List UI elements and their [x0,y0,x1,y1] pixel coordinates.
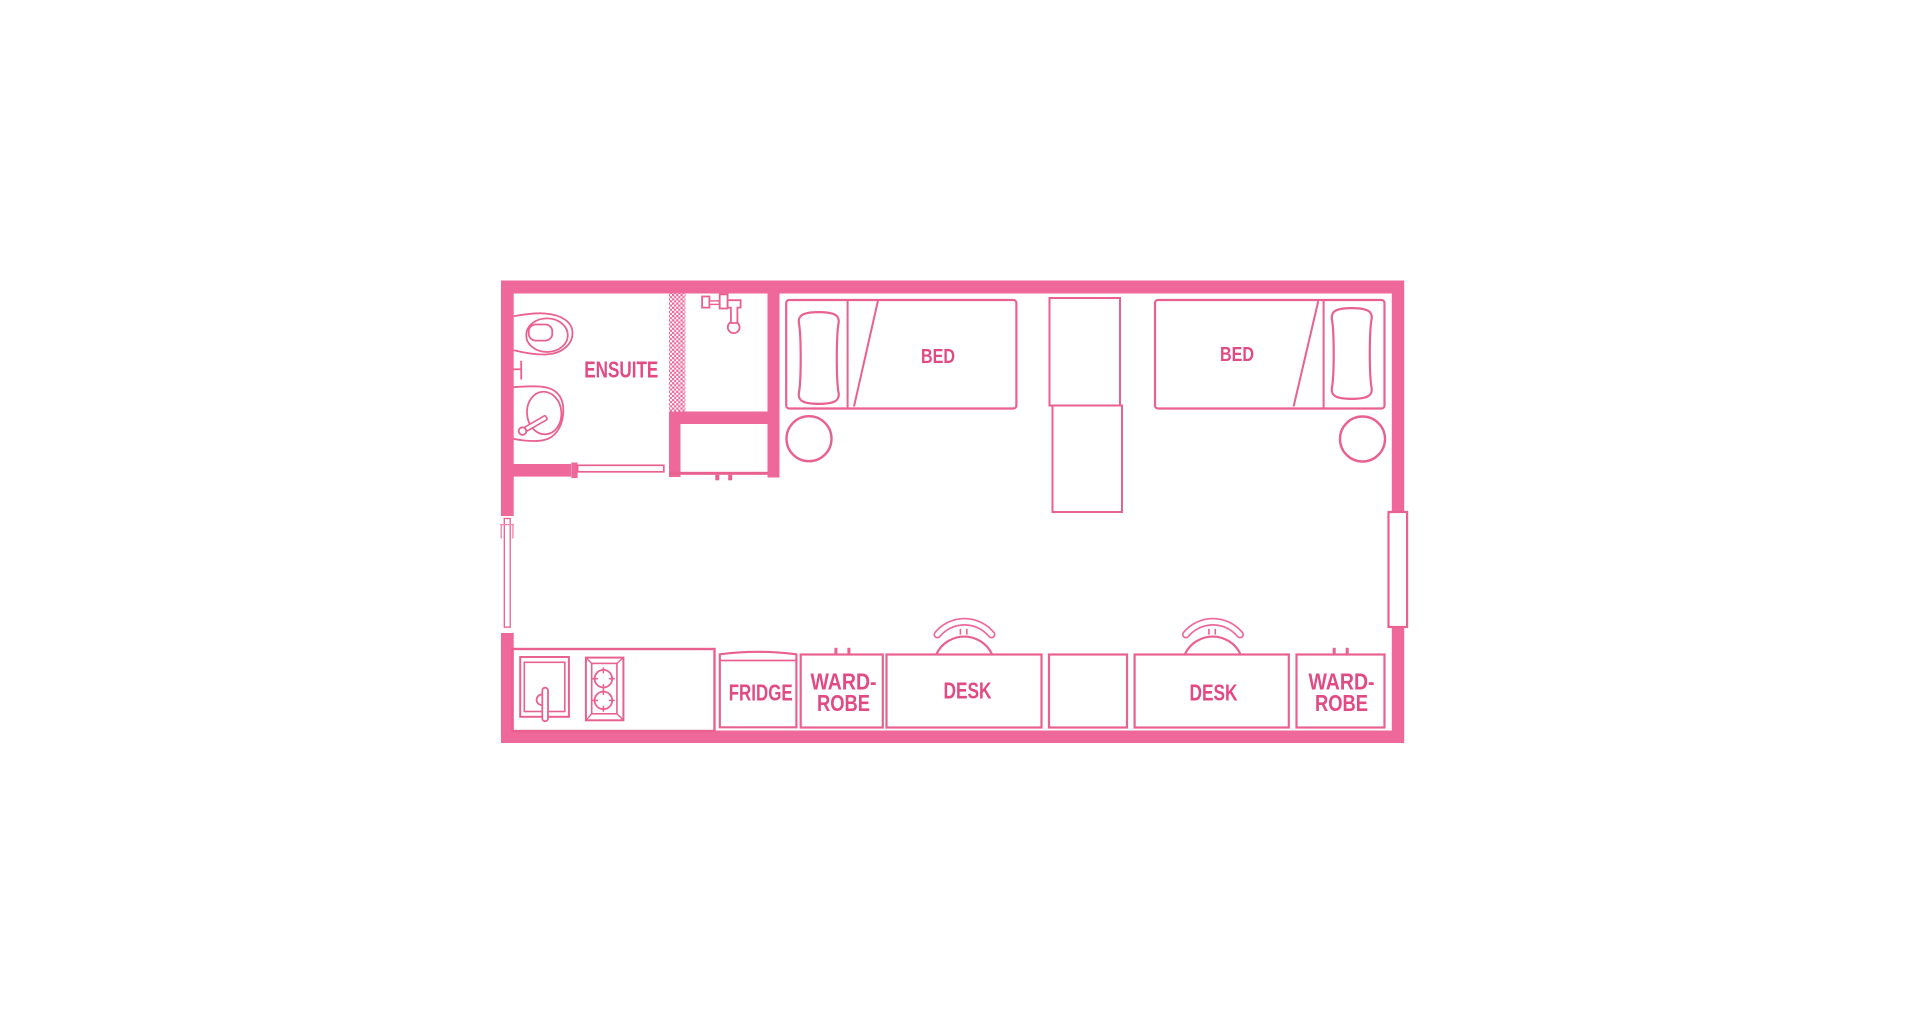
svg-text:ROBE: ROBE [817,690,870,716]
svg-text:ROBE: ROBE [1315,690,1368,716]
svg-text:DESK: DESK [944,678,992,704]
svg-text:DESK: DESK [1190,680,1238,706]
svg-text:BED: BED [1220,343,1254,366]
svg-text:FRIDGE: FRIDGE [729,679,793,705]
svg-text:BED: BED [921,345,955,368]
svg-text:ENSUITE: ENSUITE [584,357,658,383]
